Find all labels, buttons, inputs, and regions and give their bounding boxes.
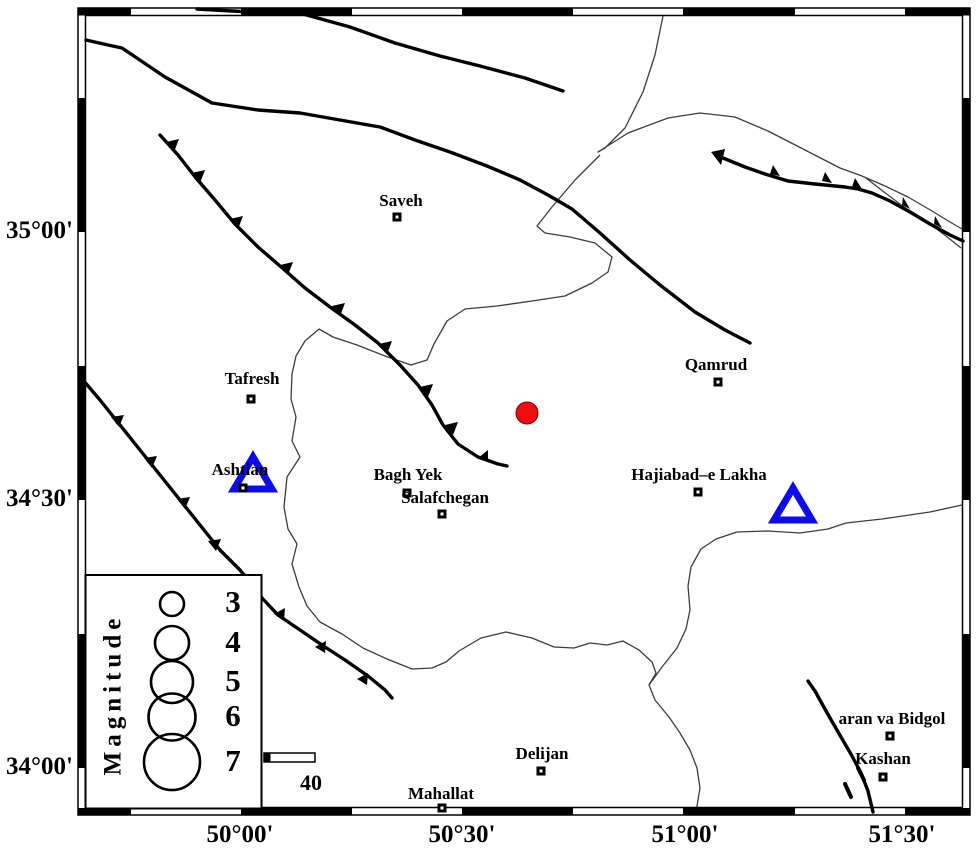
city-label-delijan: Delijan (516, 745, 569, 762)
legend-value-5: 5 (225, 665, 241, 696)
city-marker-tafresh (247, 395, 256, 404)
lon-label-50-30: 50°30' (429, 822, 496, 847)
city-marker-qamrud (714, 378, 723, 387)
lat-label-34-00: 34°00' (0, 754, 73, 779)
city-label-hajiabad-e-lakha: Hajiabad–e Lakha (631, 466, 767, 483)
legend-title: Magnitude (101, 595, 126, 795)
city-label-saveh: Saveh (379, 192, 422, 209)
city-marker-aran-va-bidgol (886, 732, 895, 741)
city-label-ashtian: Ashtian (212, 461, 269, 478)
city-label-bagh-yek: Bagh Yek (374, 466, 443, 483)
scale-bar-outline (264, 753, 315, 762)
city-marker-delijan (537, 767, 546, 776)
city-marker-ashtian (239, 484, 248, 493)
map-figure: 35°00' 34°30' 34°00' 50°00' 50°30' 51°00… (0, 0, 978, 851)
legend-value-3: 3 (225, 586, 241, 617)
city-label-qamrud: Qamrud (685, 356, 747, 373)
legend-value-6: 6 (225, 700, 241, 731)
city-marker-hajiabad (694, 488, 703, 497)
city-marker-salafchegan (438, 510, 447, 519)
lon-label-51-30: 51°30' (869, 822, 936, 847)
legend-value-4: 4 (225, 626, 241, 657)
city-marker-kashan (879, 773, 888, 782)
scale-bar (264, 753, 315, 762)
city-label-aran-va-bidgol: aran va Bidgol (839, 710, 946, 727)
city-marker-saveh (393, 213, 402, 222)
map-canvas (0, 0, 978, 851)
city-label-salafchegan: Salafchegan (401, 489, 489, 506)
scale-bar-fill (265, 754, 271, 762)
legend-value-7: 7 (225, 745, 241, 776)
city-label-mahallat: Mahallat (408, 785, 474, 802)
city-label-tafresh: Tafresh (225, 370, 280, 387)
lat-label-35-00: 35°00' (0, 218, 73, 243)
lon-label-50-00: 50°00' (207, 822, 274, 847)
city-marker-mahallat (438, 804, 447, 813)
lat-label-34-30: 34°30' (0, 486, 73, 511)
epicenter-circle (516, 402, 538, 424)
scale-bar-label: 40 (300, 772, 322, 794)
lon-label-51-00: 51°00' (652, 822, 719, 847)
city-label-kashan: Kashan (855, 750, 911, 767)
